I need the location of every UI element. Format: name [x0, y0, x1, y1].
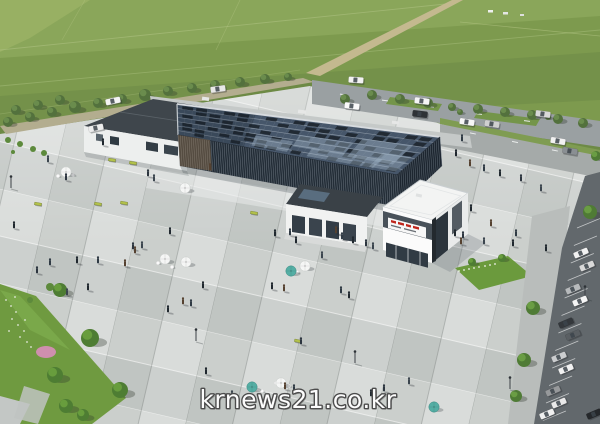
white-flower	[5, 299, 7, 301]
pavilion-corner-sign	[432, 217, 436, 263]
lawn-letter	[484, 265, 486, 267]
white-flower	[11, 318, 13, 320]
bush	[27, 297, 33, 303]
lawn-letter	[458, 270, 460, 272]
bush	[11, 150, 15, 154]
car	[348, 76, 365, 85]
lawn-letter	[463, 269, 465, 271]
annex-window	[96, 134, 103, 142]
bush	[30, 146, 36, 152]
lawn-letter	[489, 264, 491, 266]
entrance-glass	[292, 215, 305, 234]
watermark: krnews21.co.kr	[199, 385, 396, 414]
white-flower	[15, 311, 17, 313]
bush	[46, 283, 54, 291]
white-flower	[10, 305, 12, 307]
architectural-rendering-page: krnews21.co.kr krnews21.co.kr	[0, 0, 600, 424]
white-flower	[17, 324, 19, 326]
bush	[5, 137, 11, 143]
bush	[41, 150, 47, 156]
white-flower	[19, 336, 21, 338]
wood-slat-accent	[178, 135, 212, 171]
lawn-letter	[494, 263, 496, 265]
entrance-glass	[309, 218, 322, 237]
annex-door	[110, 136, 119, 146]
white-flower	[23, 330, 25, 332]
lawn-letter	[468, 268, 470, 270]
lawn-letter	[473, 267, 475, 269]
flower-bed-pink	[36, 346, 56, 358]
white-flower	[30, 346, 32, 348]
aerial-rendering: krnews21.co.kr krnews21.co.kr	[0, 0, 600, 424]
entrance-glass	[343, 223, 356, 242]
white-flower	[14, 296, 16, 298]
lawn-letter	[478, 266, 480, 268]
bush	[17, 141, 23, 147]
white-flower	[26, 341, 28, 343]
white-flower	[8, 330, 10, 332]
white-flower	[24, 319, 26, 321]
